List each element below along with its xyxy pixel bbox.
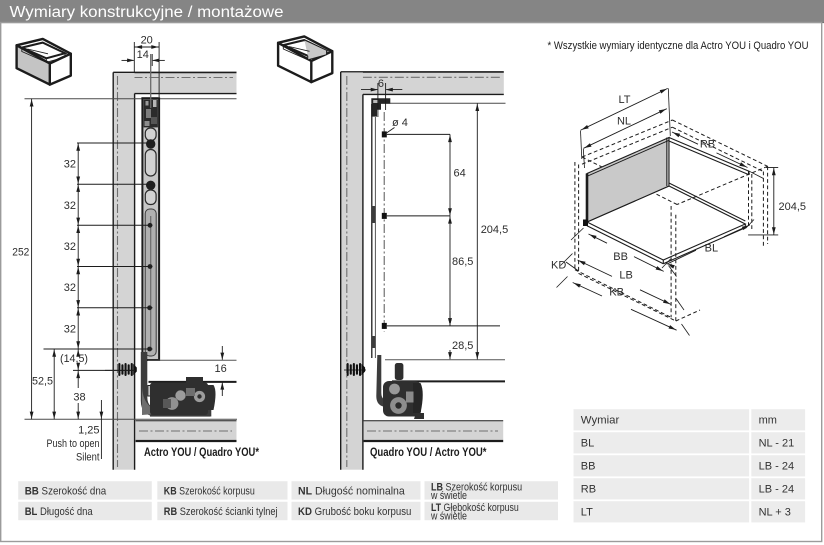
svg-text:32: 32 xyxy=(64,200,76,212)
svg-text:w świetle: w świetle xyxy=(430,510,467,522)
svg-text:32: 32 xyxy=(64,282,76,294)
svg-text:KD Grubość boku korpusu: KD Grubość boku korpusu xyxy=(298,506,411,518)
svg-text:mm: mm xyxy=(759,415,777,427)
svg-text:NL + 3: NL + 3 xyxy=(759,507,791,519)
svg-text:52,5: 52,5 xyxy=(32,375,53,387)
svg-text:6: 6 xyxy=(378,78,384,90)
svg-text:BL Długość dna: BL Długość dna xyxy=(25,506,93,518)
svg-text:14: 14 xyxy=(137,49,149,61)
svg-text:20: 20 xyxy=(141,35,153,47)
svg-text:LB: LB xyxy=(619,270,632,282)
svg-text:BB: BB xyxy=(613,251,628,263)
svg-text:Wymiary konstrukcyjne / montaż: Wymiary konstrukcyjne / montażowe xyxy=(10,4,284,21)
svg-text:Actro YOU / Quadro YOU*: Actro YOU / Quadro YOU* xyxy=(144,445,259,459)
svg-text:38: 38 xyxy=(73,391,85,403)
svg-text:KB: KB xyxy=(609,287,624,299)
svg-text:* Wszystkie wymiary identyczne: * Wszystkie wymiary identyczne dla Actro… xyxy=(548,40,809,52)
svg-text:252: 252 xyxy=(12,246,29,258)
svg-text:BL: BL xyxy=(705,242,718,254)
svg-text:204,5: 204,5 xyxy=(481,224,509,236)
svg-text:86,5: 86,5 xyxy=(452,256,473,268)
svg-text:28,5: 28,5 xyxy=(452,340,473,352)
svg-text:BB: BB xyxy=(581,461,596,473)
svg-text:ø 4: ø 4 xyxy=(392,117,408,129)
svg-text:KD: KD xyxy=(551,260,566,272)
svg-text:LT: LT xyxy=(581,507,593,519)
svg-text:1,25: 1,25 xyxy=(78,424,99,436)
svg-text:RB: RB xyxy=(700,139,715,151)
svg-text:KB Szerokość korpusu: KB Szerokość korpusu xyxy=(164,486,255,498)
svg-text:Silent: Silent xyxy=(76,452,100,464)
svg-text:16: 16 xyxy=(215,363,227,375)
svg-text:NL: NL xyxy=(617,116,631,128)
svg-text:Push to open: Push to open xyxy=(47,438,100,450)
svg-text:64: 64 xyxy=(454,167,466,179)
svg-text:32: 32 xyxy=(64,323,76,335)
svg-text:32: 32 xyxy=(64,241,76,253)
svg-text:32: 32 xyxy=(64,159,76,171)
svg-text:LB - 24: LB - 24 xyxy=(759,484,794,496)
svg-text:LT: LT xyxy=(618,94,630,106)
svg-text:RB Szerokość ścianki tylnej: RB Szerokość ścianki tylnej xyxy=(164,506,278,518)
svg-text:NL - 21: NL - 21 xyxy=(759,438,795,450)
svg-text:BL: BL xyxy=(581,438,594,450)
svg-text:RB: RB xyxy=(581,484,596,496)
svg-text:BB Szerokość dna: BB Szerokość dna xyxy=(25,486,107,498)
svg-text:LB - 24: LB - 24 xyxy=(759,461,794,473)
svg-text:Quadro YOU / Actro YOU*: Quadro YOU / Actro YOU* xyxy=(370,445,487,459)
svg-text:204,5: 204,5 xyxy=(779,201,807,213)
svg-text:NL Długość nominalna: NL Długość nominalna xyxy=(298,486,405,498)
svg-text:Wymiar: Wymiar xyxy=(581,415,620,427)
svg-text:w świetle: w świetle xyxy=(430,490,467,502)
svg-text:(14,5): (14,5) xyxy=(60,353,88,365)
